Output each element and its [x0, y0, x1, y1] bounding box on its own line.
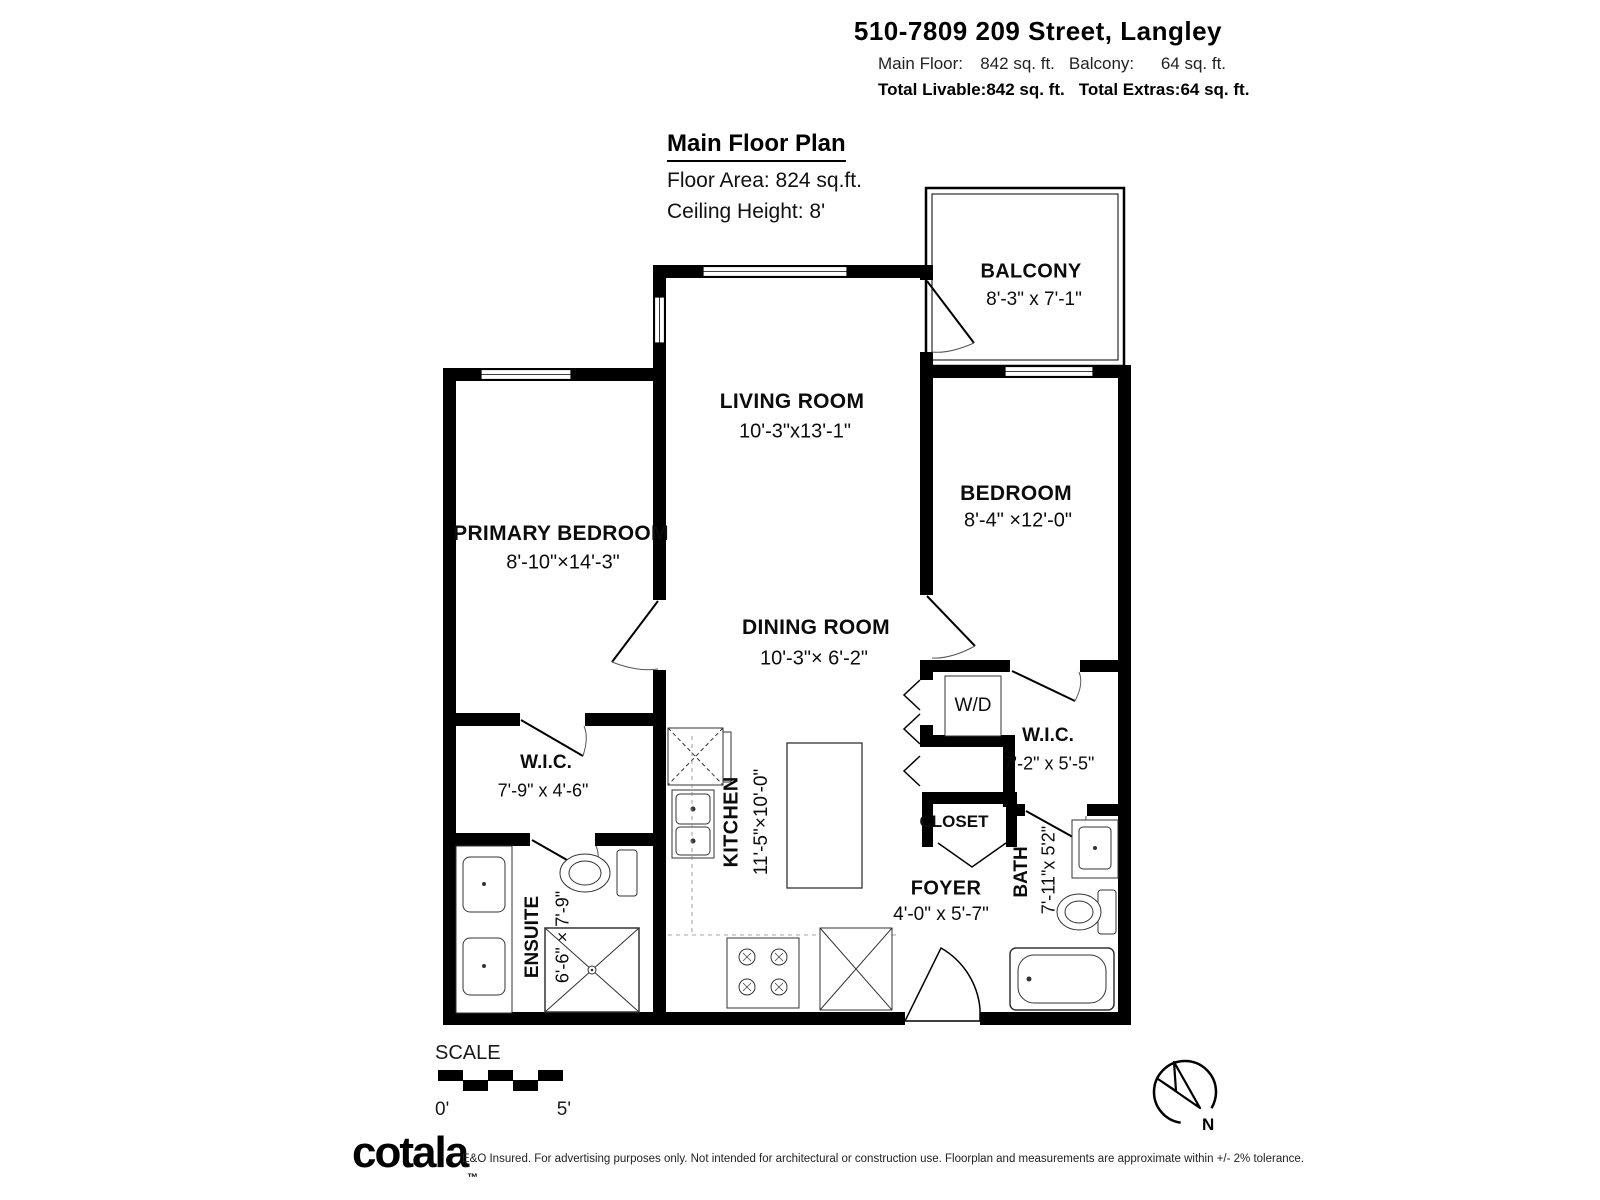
room-label-foyer: FOYER — [911, 878, 981, 901]
balcony-value: 64 sq. ft. — [1134, 54, 1226, 74]
ensuite-toilet-tank — [617, 850, 637, 896]
room-label-dining: DINING ROOM — [742, 616, 890, 640]
room-label-closet: CLOSET — [920, 812, 989, 832]
room-dims-balcony: 8'-3" x 7'-1" — [986, 289, 1082, 311]
total-livable-label: Total Livable: — [878, 80, 986, 100]
listing-title: 510-7809 209 Street, Langley — [700, 16, 1222, 47]
kitchen-island — [787, 743, 862, 888]
plan-title: Main Floor Plan — [667, 130, 846, 162]
total-extras-value: 64 sq. ft. — [1180, 80, 1249, 100]
compass-north-label: N — [1202, 1115, 1214, 1134]
room-label-bedroom: BEDROOM — [960, 482, 1072, 506]
entry-door — [905, 948, 980, 1021]
cotala-logo: cotala™ — [352, 1128, 478, 1184]
scale-start: 0' — [435, 1099, 449, 1121]
room-label-wic-right: W.I.C. — [1022, 725, 1074, 747]
main-floor-label: Main Floor: — [878, 54, 963, 74]
room-dims-foyer: 4'-0" x 5'-7" — [893, 904, 989, 926]
scale-bar: SCALE 0' 5' — [435, 1042, 575, 1121]
total-livable-value: 842 sq. ft. — [986, 80, 1064, 100]
washer-dryer-label: W/D — [955, 695, 992, 717]
ensuite-fixtures — [456, 846, 639, 1013]
stove — [727, 938, 799, 1008]
main-floor-value: 842 sq. ft. — [963, 54, 1055, 74]
scale-bar-graphic — [435, 1069, 571, 1093]
room-label-ensuite: ENSUITE — [522, 896, 544, 978]
room-dims-wic-left: 7'-9" x 4'-6" — [498, 781, 589, 802]
trademark-symbol: ™ — [467, 1172, 478, 1184]
totals-row: Total Livable: 842 sq. ft. Total Extras:… — [878, 80, 1226, 100]
total-extras-label: Total Extras: — [1079, 80, 1181, 100]
scale-end: 5' — [557, 1099, 571, 1121]
room-dims-bedroom: 8'-4" ×12'-0" — [964, 510, 1072, 533]
room-label-bath: BATH — [1011, 846, 1033, 897]
floorplan-page: 510-7809 209 Street, Langley Main Floor:… — [0, 0, 1600, 1200]
room-label-kitchen: KITCHEN — [721, 777, 744, 868]
room-dims-dining: 10'-3"× 6'-2" — [760, 648, 868, 671]
area-summary-row: Main Floor: 842 sq. ft. Balcony: 64 sq. … — [878, 54, 1226, 74]
room-label-primary-bedroom: PRIMARY BEDROOM — [453, 522, 669, 546]
kitchen-fixtures — [668, 728, 897, 1010]
north-arrow-icon: N — [1140, 1048, 1236, 1144]
room-label-balcony: BALCONY — [981, 261, 1082, 284]
room-dims-ensuite: 6'-6" × 7'-9" — [553, 891, 574, 983]
disclaimer-text: E&O Insured. For advertising purposes on… — [462, 1153, 1232, 1165]
room-label-wic-left: W.I.C. — [520, 752, 572, 774]
room-dims-primary-bedroom: 8'-10"×14'-3" — [506, 552, 620, 575]
room-dims-kitchen: 11'-5"×10'-0" — [751, 769, 773, 876]
room-dims-bath: 7'-11"x 5'2" — [1039, 826, 1060, 914]
balcony-label: Balcony: — [1069, 54, 1134, 74]
room-dims-wic-right: 7'-2" x 5'-5" — [1004, 754, 1095, 775]
room-label-living: LIVING ROOM — [720, 390, 864, 414]
room-dims-living: 10'-3"x13'-1" — [739, 421, 851, 444]
scale-label: SCALE — [435, 1042, 575, 1065]
